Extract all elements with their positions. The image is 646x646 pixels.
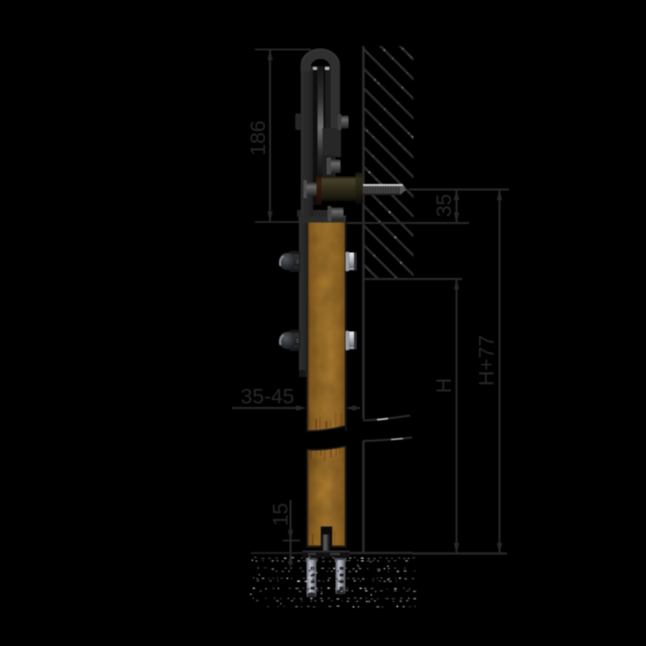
svg-text:35-45: 35-45	[241, 386, 295, 409]
svg-text:H: H	[433, 378, 456, 393]
svg-text:H+77: H+77	[476, 335, 499, 386]
svg-text:186: 186	[247, 120, 270, 155]
svg-text:35: 35	[433, 194, 456, 217]
svg-text:15: 15	[270, 503, 293, 526]
